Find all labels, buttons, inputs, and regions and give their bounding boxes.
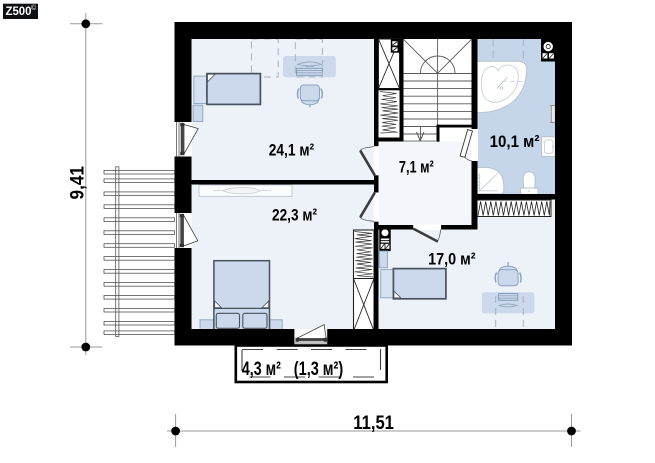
svg-text:10,1 м²: 10,1 м²	[490, 133, 540, 151]
svg-text:Z500: Z500	[6, 4, 32, 18]
svg-text:7,1 м²: 7,1 м²	[399, 159, 434, 177]
svg-text:11,51: 11,51	[353, 413, 394, 434]
svg-text:22,3 м²: 22,3 м²	[272, 207, 317, 225]
svg-text:17,0 м²: 17,0 м²	[428, 251, 476, 269]
svg-text:24,1 м²: 24,1 м²	[269, 141, 315, 159]
svg-text:4,3 м²: 4,3 м²	[242, 359, 281, 380]
svg-text:©: ©	[31, 4, 37, 12]
svg-text:9,41: 9,41	[68, 166, 89, 200]
svg-text:(1,3 м²): (1,3 м²)	[294, 359, 343, 380]
